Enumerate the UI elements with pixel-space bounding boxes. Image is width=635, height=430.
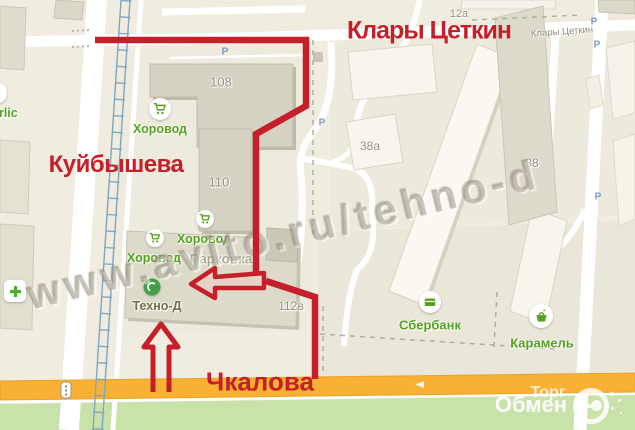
logo-sparkle xyxy=(610,392,614,396)
left-block-arrow xyxy=(191,268,264,298)
annotation-street-top: Клары Цеткин xyxy=(347,17,511,46)
route-overlay xyxy=(0,0,635,430)
map-canvas[interactable]: 108 110 112в 12а 38а 38 Хоровод Хоровод … xyxy=(0,0,635,430)
annotation-street-bottom: Чкалова xyxy=(206,367,314,398)
up-block-arrow xyxy=(144,324,178,392)
route-line-south xyxy=(266,281,315,379)
logo-sparkle xyxy=(611,407,614,410)
logo-sparkle xyxy=(618,399,621,402)
logo-sparkle xyxy=(620,412,622,414)
annotation-street-left: Куйбышева xyxy=(49,151,184,179)
service-logo-word-bottom: Обмен xyxy=(495,392,567,418)
service-logo-icon xyxy=(573,388,609,424)
